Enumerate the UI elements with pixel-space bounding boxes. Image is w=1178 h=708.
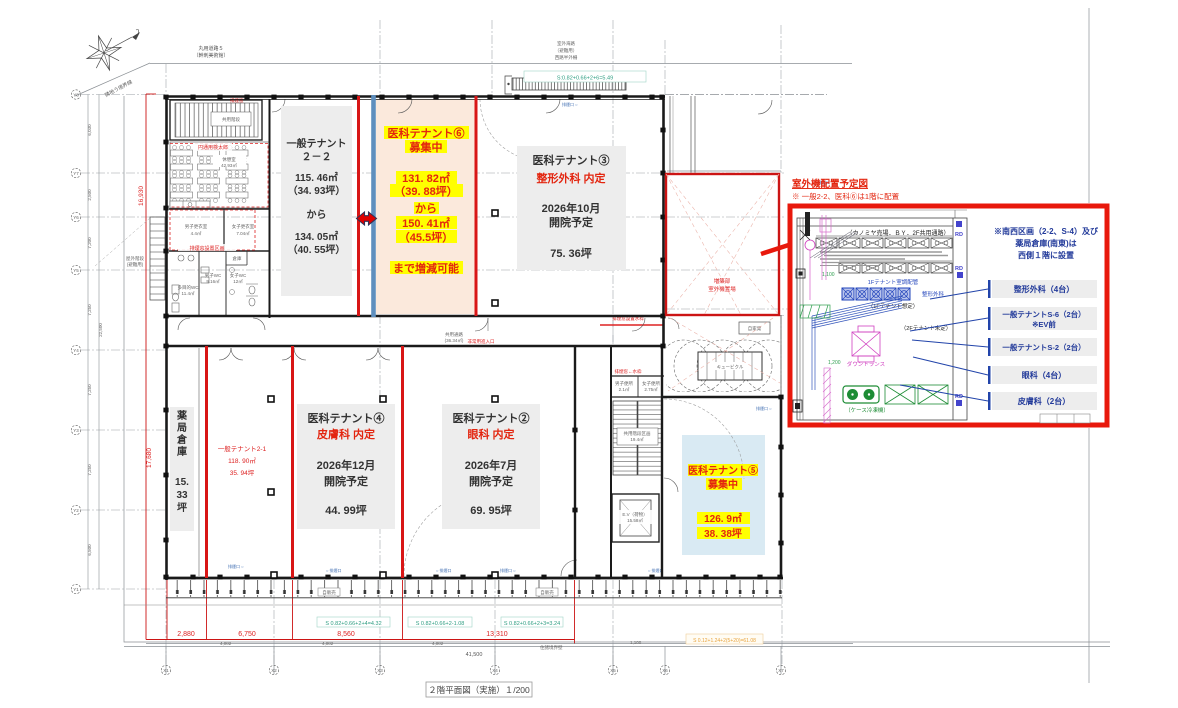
svg-text:から: から — [415, 202, 437, 215]
svg-text:X6: X6 — [662, 668, 668, 673]
svg-text:4,002: 4,002 — [220, 641, 232, 646]
svg-text:○ 排煙口: ○ 排煙口 — [436, 567, 452, 573]
svg-text:（幹刺美術館）: （幹刺美術館） — [193, 52, 228, 59]
svg-text:Y8: Y8 — [73, 93, 79, 98]
svg-text:一般テナントS-2（2台）: 一般テナントS-2（2台） — [1002, 342, 1085, 352]
svg-text:西路半外柵: 西路半外柵 — [555, 54, 578, 61]
svg-text:排煙口 ○: 排煙口 ○ — [500, 567, 516, 573]
svg-text:（39. 88坪）: （39. 88坪） — [394, 185, 458, 198]
svg-text:7,250: 7,250 — [87, 304, 92, 316]
svg-text:医科テナント②: 医科テナント② — [453, 411, 530, 425]
svg-text:16,930: 16,930 — [138, 186, 145, 206]
svg-text:排煙口 ○: 排煙口 ○ — [756, 405, 772, 411]
svg-text:7.04㎡: 7.04㎡ — [236, 230, 250, 236]
svg-text:募集中: 募集中 — [409, 140, 443, 154]
svg-text:室外海路: 室外海路 — [557, 40, 575, 47]
svg-text:排煙窓←水枠: 排煙窓←水枠 — [615, 368, 642, 375]
svg-text:排煙口 ○: 排煙口 ○ — [228, 563, 244, 569]
svg-text:11.4㎡: 11.4㎡ — [182, 290, 195, 296]
svg-text:X7: X7 — [778, 668, 784, 673]
svg-text:募集中: 募集中 — [707, 478, 738, 491]
svg-text:S 0.12+1.24+2(5+20)=61.08: S 0.12+1.24+2(5+20)=61.08 — [693, 638, 756, 644]
svg-text:２階平面図（実施）１/200: ２階平面図（実施）１/200 — [428, 685, 530, 695]
svg-text:坪: 坪 — [177, 501, 187, 514]
svg-text:○ 排煙口: ○ 排煙口 — [326, 567, 342, 573]
svg-text:7,200: 7,200 — [87, 237, 92, 249]
svg-text:13,310: 13,310 — [486, 631, 508, 638]
svg-text:西側１階に設置: 西側１階に設置 — [1018, 250, 1074, 260]
svg-text:7,250: 7,250 — [87, 384, 92, 396]
svg-text:倉庫: 倉庫 — [233, 255, 242, 262]
svg-text:薬局倉庫(南東)は: 薬局倉庫(南東)は — [1014, 238, 1076, 248]
svg-text:排煙口 ○: 排煙口 ○ — [562, 101, 578, 107]
svg-text:75. 36坪: 75. 36坪 — [550, 247, 592, 260]
svg-text:男子便所: 男子便所 — [615, 380, 633, 387]
svg-text:15.: 15. — [175, 477, 189, 488]
svg-text:キュービクル: キュービクル — [717, 364, 744, 371]
svg-text:35. 94坪: 35. 94坪 — [230, 469, 255, 477]
svg-text:（ケース冷凍機）: （ケース冷凍機） — [845, 406, 889, 414]
svg-text:医科テナント⑥: 医科テナント⑥ — [388, 126, 465, 140]
svg-text:一般テナント2-1: 一般テナント2-1 — [218, 444, 267, 453]
svg-text:X1: X1 — [163, 668, 169, 673]
svg-text:X5: X5 — [610, 668, 616, 673]
svg-text:排煙窓: 排煙窓 — [230, 97, 244, 104]
svg-text:男子更衣室: 男子更衣室 — [185, 223, 208, 230]
svg-text:6,750: 6,750 — [238, 631, 256, 638]
svg-text:X4: X4 — [492, 668, 498, 673]
svg-text:RD: RD — [955, 232, 963, 238]
svg-text:皮膚科（2台）: 皮膚科（2台） — [1017, 396, 1070, 406]
svg-text:44. 99坪: 44. 99坪 — [325, 504, 367, 517]
svg-text:開院予定: 開院予定 — [324, 474, 368, 488]
svg-text:室外機置場: 室外機置場 — [708, 285, 736, 293]
svg-text:皮膚科 内定: 皮膚科 内定 — [316, 427, 375, 441]
svg-text:2026年7月: 2026年7月 — [465, 458, 518, 472]
svg-text:ダウントランス: ダウントランス — [847, 360, 885, 368]
svg-text:134. 05㎡: 134. 05㎡ — [295, 230, 338, 243]
svg-text:開院予定: 開院予定 — [549, 215, 593, 229]
svg-text:131. 82㎡: 131. 82㎡ — [402, 171, 450, 185]
svg-text:※南西区画（2-2、S-4）及び: ※南西区画（2-2、S-4）及び — [994, 226, 1098, 236]
svg-text:8,560: 8,560 — [337, 631, 355, 638]
svg-text:S 0.82+0.66+2+3=3.24: S 0.82+0.66+2+3=3.24 — [504, 621, 560, 627]
svg-text:7,250: 7,250 — [87, 464, 92, 476]
svg-text:X3: X3 — [377, 668, 383, 673]
svg-text:Y2: Y2 — [73, 508, 79, 513]
svg-text:男子WC: 男子WC — [205, 272, 222, 279]
svg-text:15.58㎡: 15.58㎡ — [627, 517, 643, 523]
svg-text:4,002: 4,002 — [322, 641, 334, 646]
svg-text:E.V（荷物）: E.V（荷物） — [622, 511, 647, 518]
svg-text:118. 90㎡: 118. 90㎡ — [228, 456, 256, 465]
svg-text:X2: X2 — [271, 668, 277, 673]
svg-text:から: から — [307, 209, 327, 221]
svg-text:多目的WC: 多目的WC — [178, 284, 200, 291]
svg-text:排煙窓設置区画: 排煙窓設置区画 — [189, 245, 224, 252]
svg-text:Y7: Y7 — [73, 171, 79, 176]
svg-text:17,680: 17,680 — [146, 448, 153, 468]
svg-text:整形外科 内定: 整形外科 内定 — [535, 171, 605, 185]
svg-text:一般テナントS-6（2台）: 一般テナントS-6（2台） — [1002, 309, 1085, 319]
svg-text:6,500: 6,500 — [87, 544, 92, 556]
svg-text:RD: RD — [955, 266, 963, 272]
svg-text:増築部: 増築部 — [714, 277, 731, 285]
svg-text:2026年10月: 2026年10月 — [542, 201, 601, 215]
svg-text:薬: 薬 — [176, 409, 188, 422]
svg-text:自販売: 自販売 — [322, 589, 336, 596]
svg-text:2.1㎡: 2.1㎡ — [619, 386, 630, 392]
svg-text:非常用進入口: 非常用進入口 — [468, 338, 495, 345]
svg-text:※EV前: ※EV前 — [1032, 319, 1056, 329]
svg-text:住諸境界壁: 住諸境界壁 — [540, 644, 563, 651]
svg-text:S 0.82+0.66+2-1.08: S 0.82+0.66+2-1.08 — [416, 621, 465, 627]
svg-text:12㎡: 12㎡ — [233, 278, 243, 284]
svg-text:一般テナント: 一般テナント — [287, 137, 347, 150]
svg-text:（34. 93坪）: （34. 93坪） — [288, 184, 346, 197]
svg-text:S 0.82+0.66+2+4=4.32: S 0.82+0.66+2+4=4.32 — [325, 621, 381, 627]
svg-text:4,002: 4,002 — [432, 641, 444, 646]
svg-text:126. 9㎡: 126. 9㎡ — [704, 512, 742, 525]
svg-text:丸用道路５: 丸用道路５ — [198, 45, 223, 52]
svg-text:（40. 55坪）: （40. 55坪） — [288, 243, 346, 256]
svg-text:円通用検太郎: 円通用検太郎 — [198, 144, 228, 151]
svg-text:1Fテナント室調配管: 1Fテナント室調配管 — [868, 278, 919, 286]
svg-text:医科テナント④: 医科テナント④ — [308, 411, 385, 425]
svg-text:(避難用): (避難用) — [127, 261, 144, 268]
svg-text:開院予定: 開院予定 — [469, 474, 513, 488]
svg-text:医科テナント⑤: 医科テナント⑤ — [688, 464, 758, 477]
svg-text:※ 一般2-2、医科⑥は1階に配置: ※ 一般2-2、医科⑥は1階に配置 — [792, 191, 900, 201]
svg-text:屋外階段: 屋外階段 — [126, 255, 144, 262]
svg-text:２－２: ２－２ — [302, 151, 332, 163]
svg-text:倉: 倉 — [176, 433, 188, 446]
svg-text:整形外科（4台）: 整形外科（4台） — [1013, 284, 1074, 294]
svg-text:(36.34㎡): (36.34㎡) — [445, 337, 464, 343]
svg-text:S:0.82+0.66+2+6=5.49: S:0.82+0.66+2+6=5.49 — [557, 76, 613, 82]
svg-text:室外機配置予定図: 室外機配置予定図 — [792, 178, 868, 190]
svg-text:眼科 内定: 眼科 内定 — [467, 427, 514, 441]
svg-text:1,100: 1,100 — [630, 640, 642, 645]
svg-text:2026年12月: 2026年12月 — [317, 458, 376, 472]
svg-text:6,030: 6,030 — [87, 124, 92, 136]
svg-text:共用階段区画: 共用階段区画 — [624, 430, 651, 437]
svg-text:41,500: 41,500 — [466, 652, 483, 658]
svg-text:38. 38坪: 38. 38坪 — [704, 527, 742, 540]
svg-text:女子WC: 女子WC — [230, 272, 247, 279]
svg-text:共用階段: 共用階段 — [222, 116, 240, 123]
svg-text:33: 33 — [176, 490, 188, 501]
svg-text:眼科（4台）: 眼科（4台） — [1022, 370, 1066, 380]
svg-text:22,500: 22,500 — [98, 323, 103, 337]
svg-text:庫: 庫 — [177, 445, 187, 458]
svg-text:休憩室: 休憩室 — [222, 156, 236, 163]
svg-text:42.93㎡: 42.93㎡ — [221, 162, 237, 168]
svg-text:2,880: 2,880 — [177, 631, 195, 638]
svg-text:150. 41㎡: 150. 41㎡ — [402, 216, 450, 230]
svg-text:115. 46㎡: 115. 46㎡ — [295, 171, 338, 184]
svg-text:女子更衣室: 女子更衣室 — [232, 223, 255, 230]
svg-text:Y6: Y6 — [73, 215, 79, 220]
svg-text:（避難用）: （避難用） — [555, 47, 578, 54]
svg-text:自販売: 自販売 — [540, 589, 554, 596]
svg-text:4.4㎡: 4.4㎡ — [191, 230, 202, 236]
svg-text:2,500: 2,500 — [87, 189, 92, 201]
svg-text:まで増減可能: まで増減可能 — [393, 261, 459, 275]
svg-text:2.75㎡: 2.75㎡ — [644, 386, 658, 392]
svg-text:女子便所: 女子便所 — [642, 380, 660, 387]
svg-text:Y4: Y4 — [73, 348, 79, 353]
svg-text:69. 95坪: 69. 95坪 — [470, 504, 512, 517]
svg-text:1,200: 1,200 — [828, 360, 841, 366]
svg-text:局: 局 — [176, 422, 187, 434]
svg-text:19.4㎡: 19.4㎡ — [630, 436, 644, 442]
svg-text:Y1: Y1 — [73, 587, 79, 592]
svg-text:9.16㎡: 9.16㎡ — [206, 278, 220, 284]
svg-text:1,100: 1,100 — [822, 272, 835, 278]
svg-text:共用通路: 共用通路 — [445, 331, 463, 338]
svg-text:（45.5坪）: （45.5坪） — [399, 231, 453, 244]
svg-text:Y5: Y5 — [73, 268, 79, 273]
svg-text:Y3: Y3 — [73, 428, 79, 433]
svg-text:医科テナント③: 医科テナント③ — [533, 153, 610, 167]
